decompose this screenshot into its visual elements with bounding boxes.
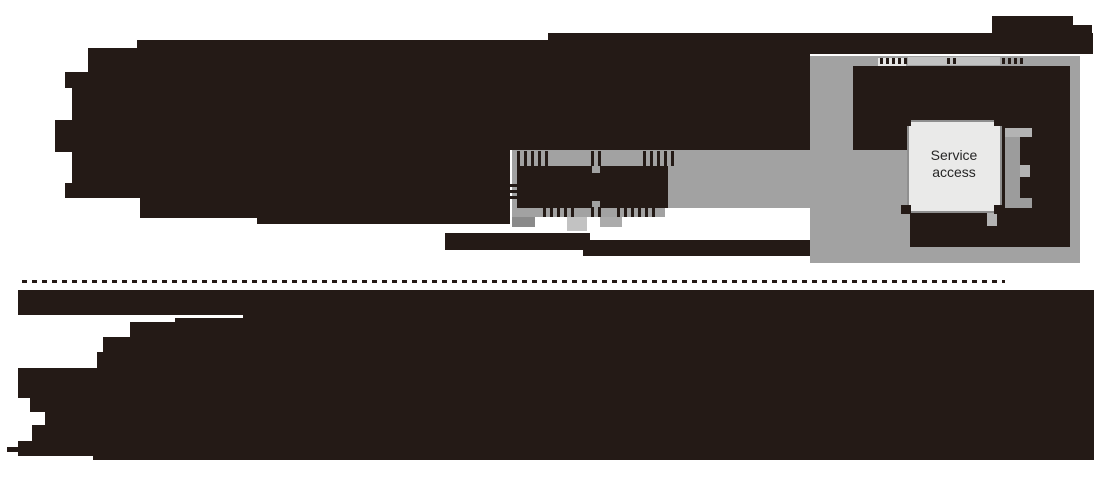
service-access-label-line1: Service: [931, 147, 978, 163]
top-right-notch: [992, 16, 1073, 33]
service-access-label-line2: access: [932, 164, 976, 180]
fixture-vertical: [1005, 137, 1020, 208]
service-access-room: Service access: [901, 117, 1004, 214]
floor-plan: Service access: [0, 0, 1100, 480]
fixture-tab: [987, 212, 997, 226]
fixture-mid-stub: [1020, 165, 1030, 177]
corridor-patch-1: [512, 217, 535, 227]
corner-tick-tl: [901, 117, 911, 126]
fixture-top-arm: [1005, 128, 1032, 137]
lower-wall-bar-left: [445, 233, 590, 250]
lower-wall-bar-right: [583, 240, 810, 256]
island-gap-bottom: [592, 201, 600, 208]
corridor-patch-3: [600, 217, 622, 227]
room-approach-corridor: [853, 150, 910, 247]
corridor-patch-2: [567, 217, 587, 231]
top-right-notch-2: [1073, 25, 1092, 33]
building-masses: [7, 16, 1094, 460]
fixture-bottom-arm: [1005, 198, 1032, 208]
corner-tick-br: [994, 205, 1004, 214]
corner-tick-tr: [994, 117, 1004, 126]
island-gap-top: [592, 166, 600, 173]
floor-plan-canvas: Service access: [0, 0, 1100, 480]
lower-building-mass: [7, 290, 1094, 460]
corner-tick-bl: [901, 205, 911, 214]
